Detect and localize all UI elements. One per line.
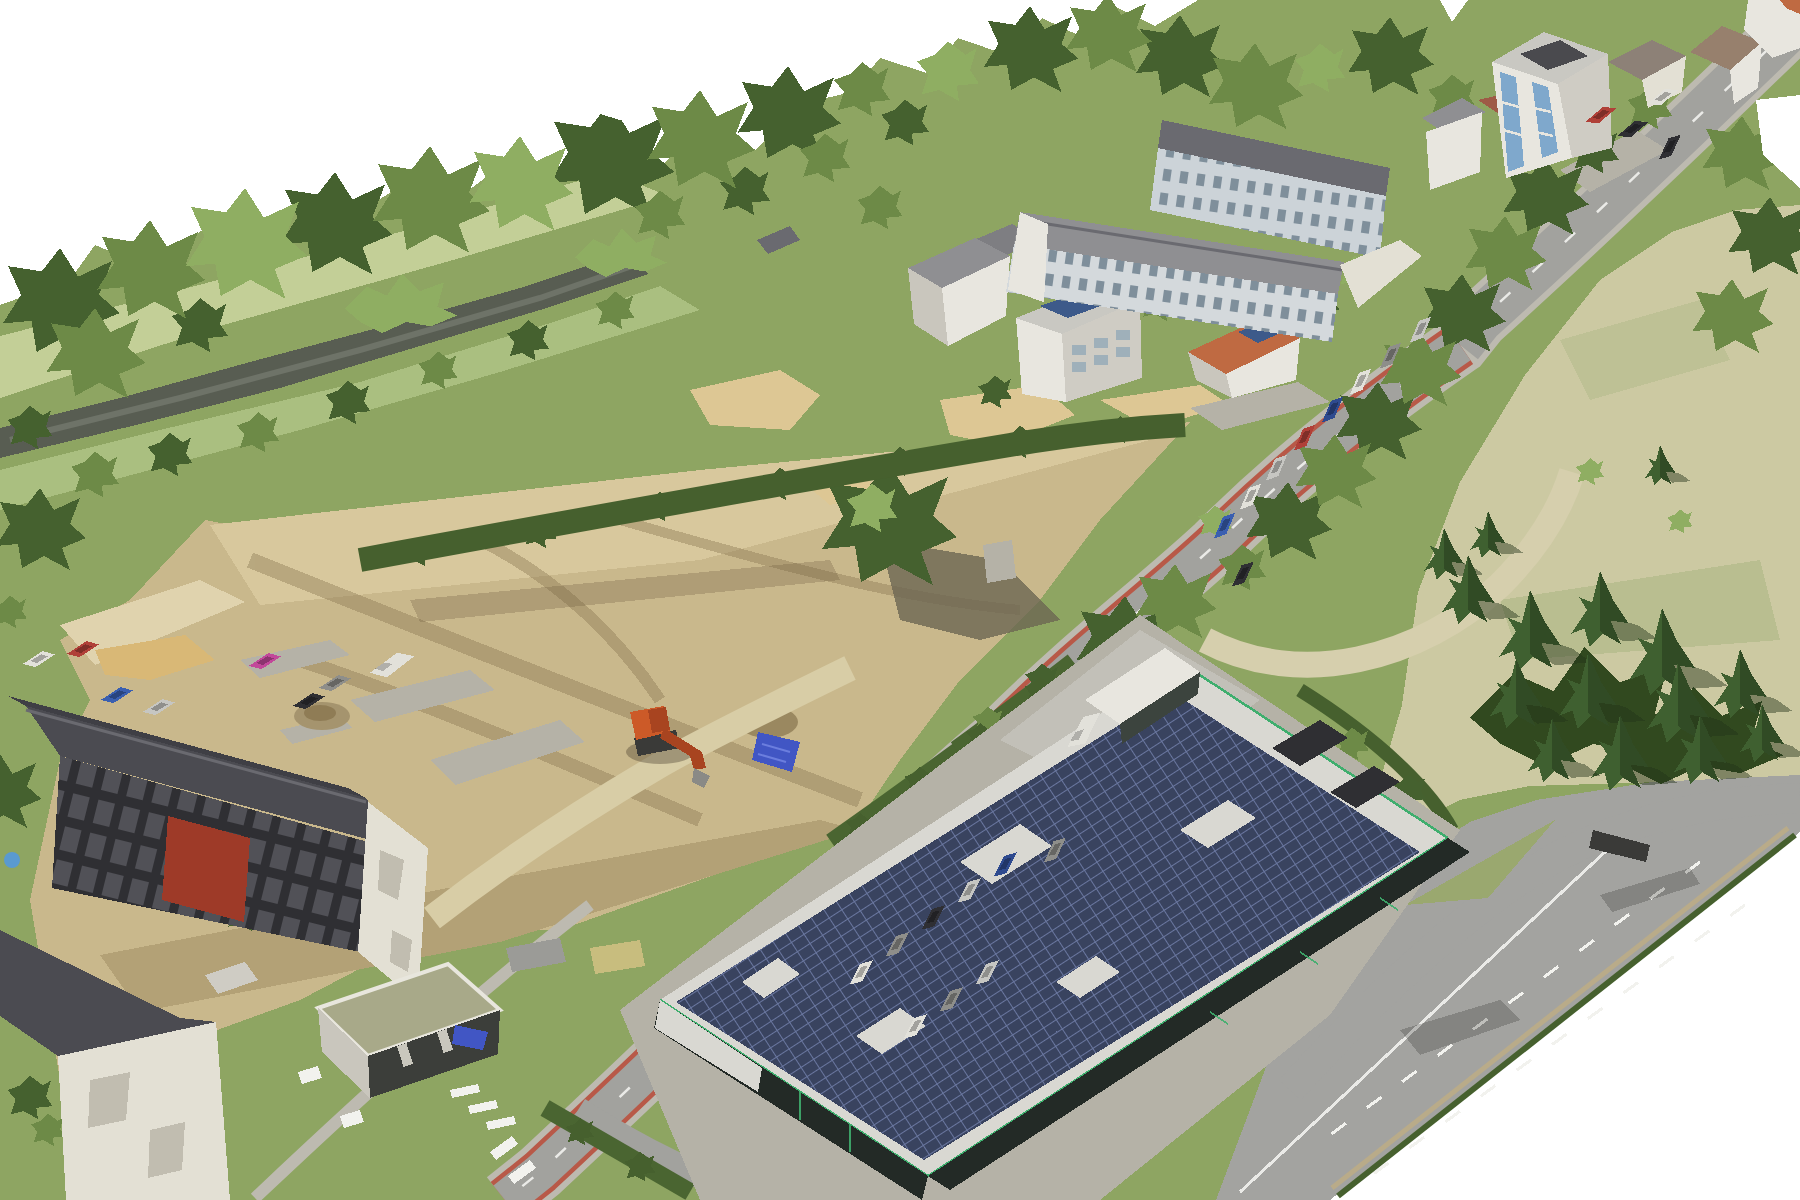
garden-pool xyxy=(4,852,20,868)
pit-ring-inner xyxy=(304,705,336,721)
aerial-mesh-render xyxy=(0,0,1800,1200)
portable-cabin xyxy=(983,540,1016,583)
